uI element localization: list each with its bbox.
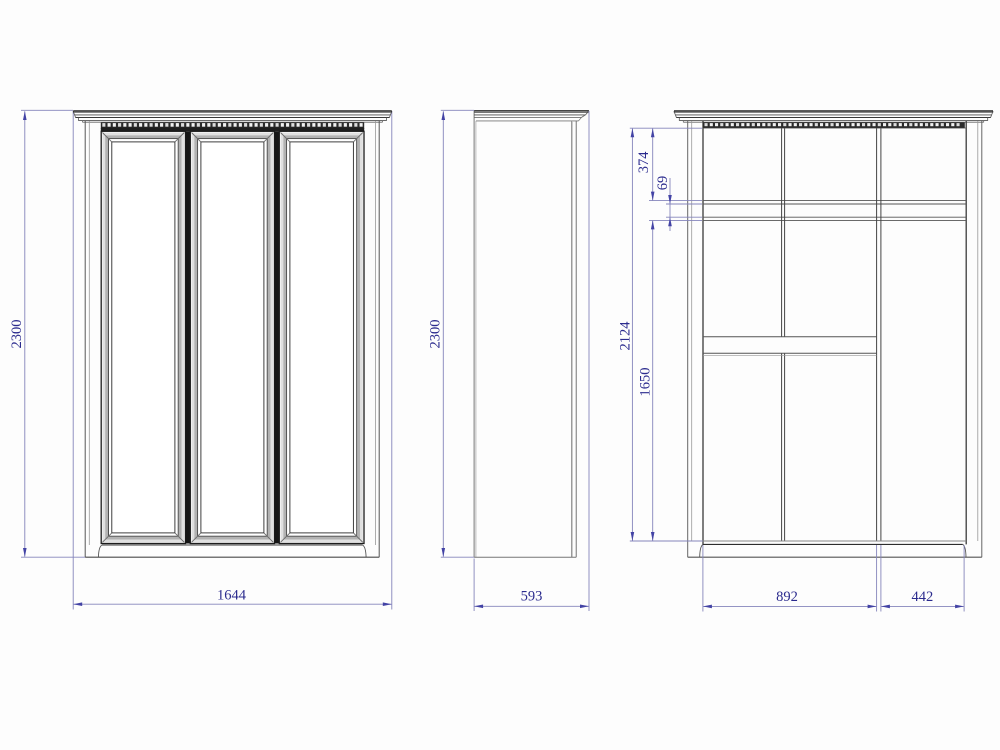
svg-text:2300: 2300 <box>428 320 444 349</box>
svg-text:593: 593 <box>521 589 543 605</box>
svg-text:1650: 1650 <box>637 368 653 397</box>
svg-text:1644: 1644 <box>217 587 247 603</box>
svg-text:2124: 2124 <box>618 321 634 351</box>
svg-text:2300: 2300 <box>9 320 25 349</box>
svg-text:892: 892 <box>776 589 798 605</box>
svg-text:442: 442 <box>912 589 934 605</box>
svg-text:374: 374 <box>636 151 652 174</box>
svg-text:69: 69 <box>655 176 671 191</box>
